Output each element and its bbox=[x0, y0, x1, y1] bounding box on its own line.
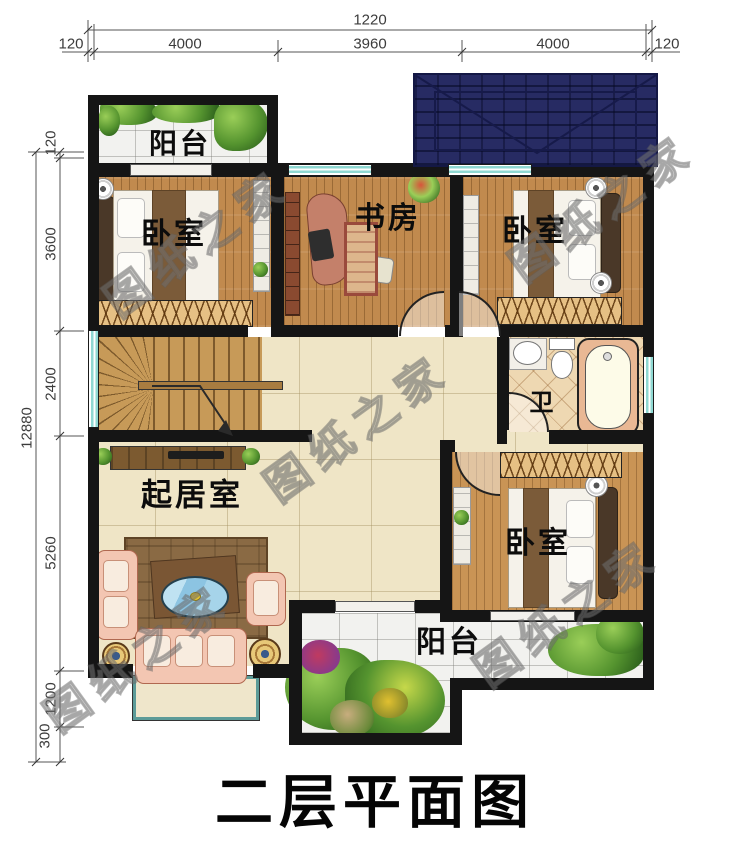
wardrobe bbox=[497, 297, 622, 325]
wall bbox=[272, 325, 398, 337]
room-label-bedroom-tr: 卧室 bbox=[502, 206, 568, 250]
room-label-bedroom-br: 卧室 bbox=[505, 518, 571, 562]
wall bbox=[88, 430, 312, 442]
tv bbox=[168, 451, 224, 459]
dim-top-total: 1220 bbox=[353, 12, 386, 29]
armchair-cushion bbox=[253, 580, 279, 616]
window bbox=[448, 164, 532, 176]
wall bbox=[267, 95, 278, 165]
toilet-tank bbox=[549, 338, 575, 350]
bookshelf bbox=[285, 192, 300, 316]
dim-left-seg-3: 5260 bbox=[43, 536, 60, 569]
window-sill bbox=[490, 611, 575, 621]
balcony-door-sill bbox=[130, 164, 212, 176]
window bbox=[88, 330, 99, 428]
bed-pillow bbox=[568, 244, 596, 280]
flowers-icon bbox=[372, 688, 408, 718]
sofa-cushion bbox=[103, 596, 129, 628]
stair-rail bbox=[138, 381, 283, 390]
floor-plan-sheet: 1220 120 4000 3960 4000 120 12880 120 36… bbox=[0, 0, 750, 848]
toilet-bowl bbox=[551, 351, 573, 379]
dim-left-total: 12880 bbox=[19, 407, 36, 449]
room-label-bedroom-tl: 卧室 bbox=[141, 209, 207, 253]
dresser bbox=[463, 195, 479, 295]
dim-left-seg-2: 2400 bbox=[43, 367, 60, 400]
wall bbox=[415, 600, 452, 613]
wall bbox=[88, 664, 133, 678]
plant-icon bbox=[253, 262, 268, 277]
room-label-balcony-top: 阳台 bbox=[149, 122, 211, 162]
dim-left-seg-4: 1200 bbox=[43, 682, 60, 715]
room-label-bath: 卫 bbox=[530, 383, 557, 418]
room-label-living: 起居室 bbox=[141, 470, 243, 515]
wall bbox=[500, 325, 654, 337]
nightstand-lamp bbox=[590, 272, 612, 294]
dim-top-seg-1: 4000 bbox=[168, 36, 201, 53]
sink-basin bbox=[513, 341, 542, 365]
table-decor bbox=[190, 592, 201, 601]
window bbox=[643, 356, 654, 414]
flowers-icon bbox=[300, 640, 340, 674]
wall bbox=[253, 664, 300, 678]
shelf bbox=[453, 487, 471, 565]
wall bbox=[497, 430, 507, 444]
bed-headboard bbox=[598, 487, 618, 599]
wardrobe bbox=[97, 300, 253, 327]
wardrobe bbox=[500, 452, 622, 478]
wall bbox=[88, 95, 278, 105]
wall bbox=[497, 337, 509, 430]
sofa-cushion bbox=[207, 635, 235, 667]
window bbox=[288, 164, 372, 176]
roof-top-right bbox=[413, 73, 658, 167]
wall bbox=[289, 733, 462, 745]
wall bbox=[271, 163, 284, 337]
window-sill bbox=[335, 601, 415, 612]
dim-left-seg-1: 3600 bbox=[43, 227, 60, 260]
dim-top-seg-0: 120 bbox=[58, 36, 83, 53]
plant-icon bbox=[242, 448, 260, 465]
sofa-cushion bbox=[143, 635, 171, 667]
wall bbox=[88, 325, 248, 337]
balcony-plants bbox=[98, 106, 120, 136]
flower-cluster bbox=[330, 700, 374, 736]
wall bbox=[88, 95, 99, 165]
dim-top-seg-3: 4000 bbox=[536, 36, 569, 53]
plant-icon bbox=[454, 510, 469, 525]
dim-top-seg-2: 3960 bbox=[353, 36, 386, 53]
wall bbox=[450, 678, 654, 690]
room-label-study: 书房 bbox=[355, 193, 421, 237]
wall bbox=[549, 430, 654, 444]
dim-left-seg-5: 300 bbox=[37, 723, 54, 748]
dim-left-seg-0: 120 bbox=[43, 130, 60, 155]
nightstand-lamp bbox=[585, 177, 607, 199]
bathtub-drain bbox=[603, 352, 612, 361]
sofa-cushion bbox=[103, 560, 129, 592]
bed-pillow bbox=[117, 252, 145, 292]
sofa-cushion bbox=[175, 635, 203, 667]
bed-pillow bbox=[568, 200, 596, 236]
room-label-balcony-bottom: 阳台 bbox=[416, 617, 482, 661]
dim-top-seg-4: 120 bbox=[654, 36, 679, 53]
sheet-title: 二层平面图 bbox=[215, 755, 535, 839]
wall bbox=[440, 440, 452, 622]
